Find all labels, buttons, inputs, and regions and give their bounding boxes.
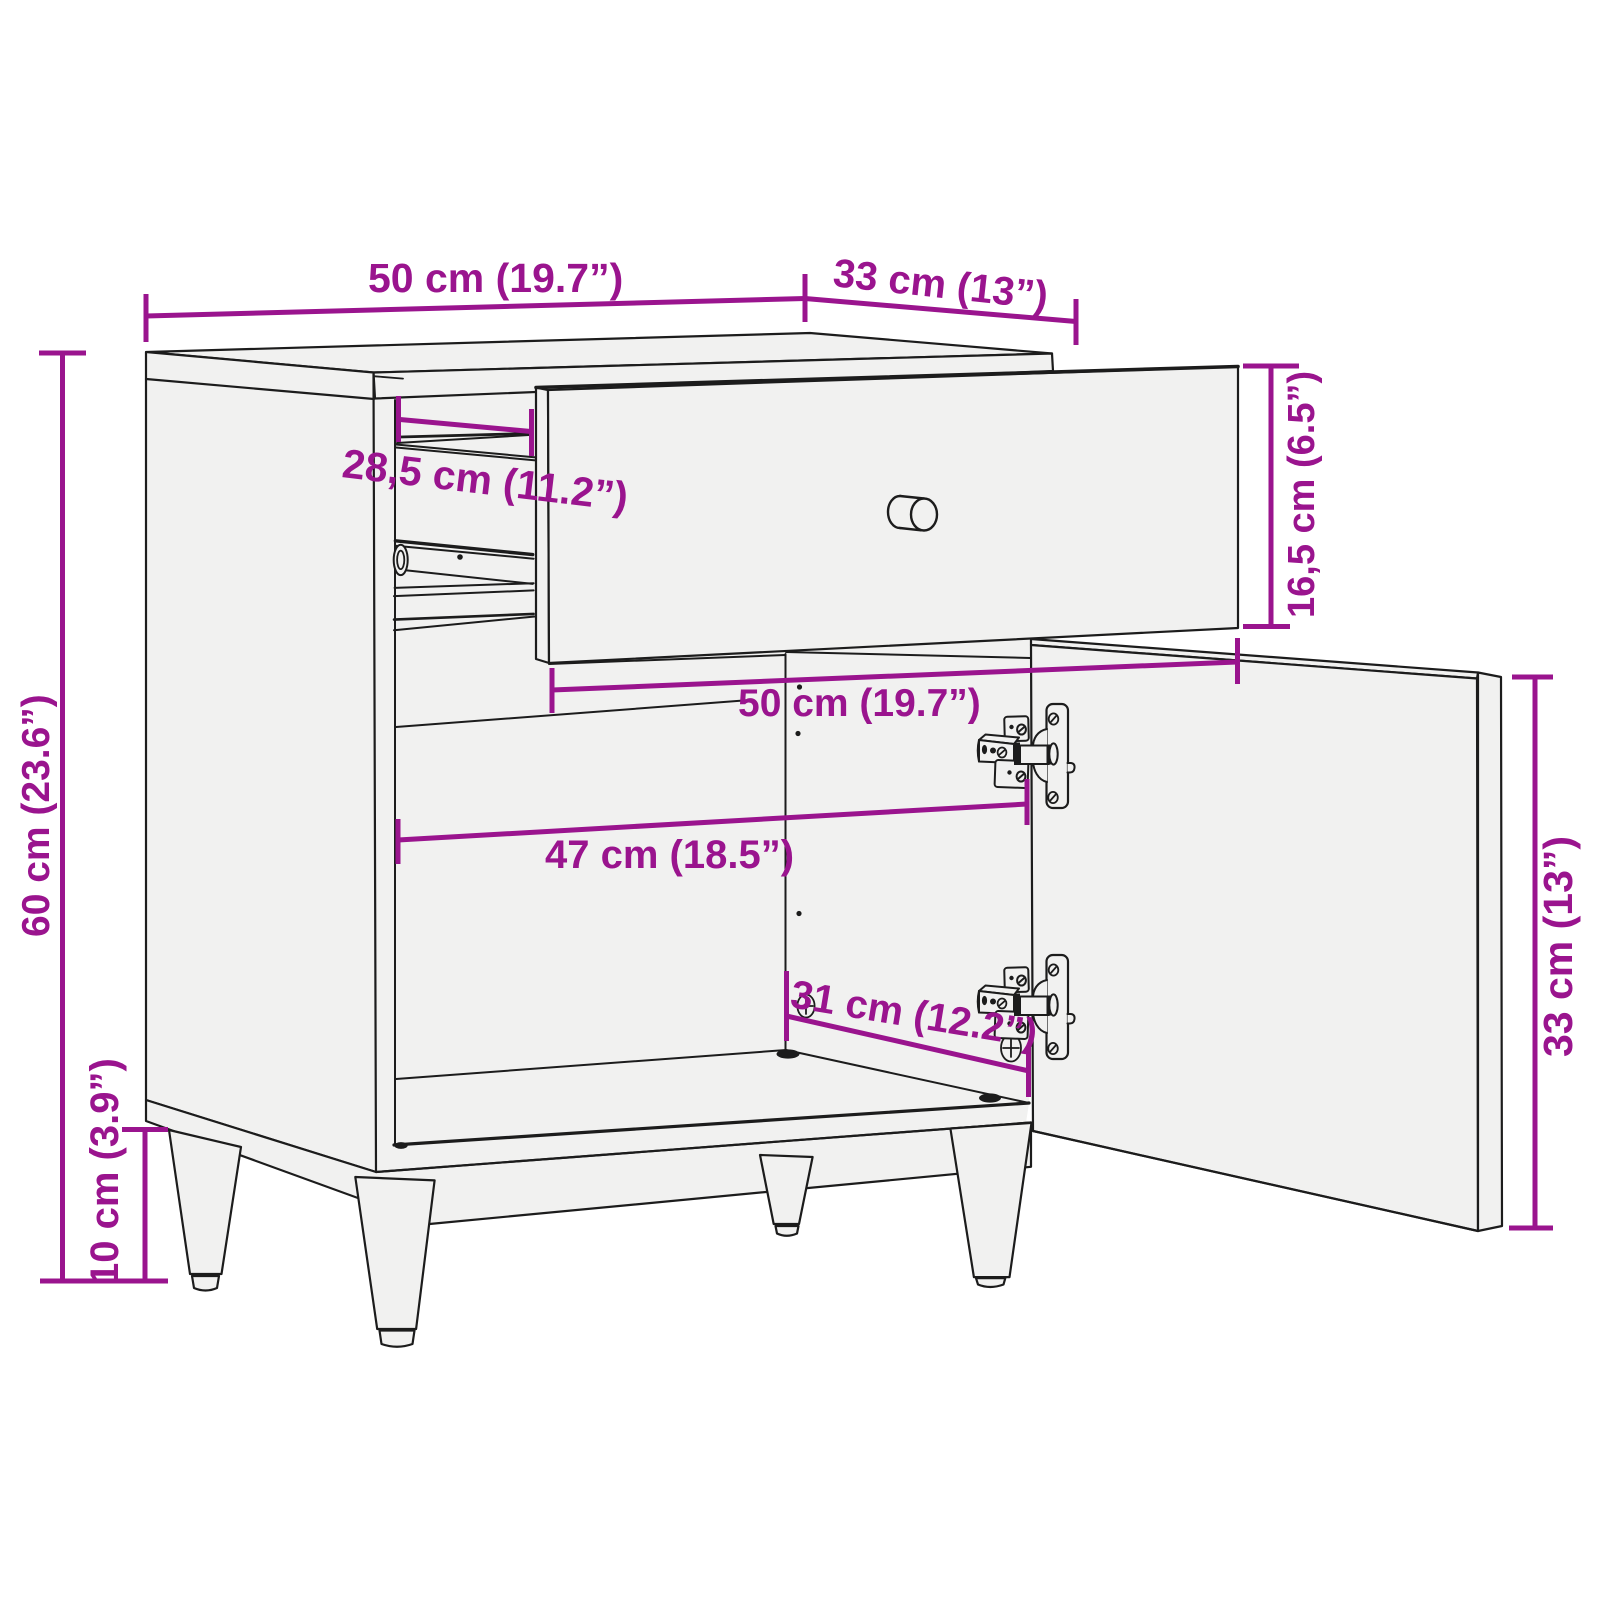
- svg-text:33 cm (13”): 33 cm (13”): [1535, 836, 1581, 1057]
- svg-text:50 cm (19.7”): 50 cm (19.7”): [368, 255, 623, 301]
- svg-text:47 cm (18.5”): 47 cm (18.5”): [545, 833, 794, 877]
- svg-text:16,5 cm (6.5”): 16,5 cm (6.5”): [1281, 371, 1323, 618]
- svg-text:60 cm (23.6”): 60 cm (23.6”): [15, 694, 58, 937]
- svg-text:10 cm (3.9”): 10 cm (3.9”): [83, 1058, 127, 1285]
- svg-text:50 cm (19.7”): 50 cm (19.7”): [738, 682, 981, 725]
